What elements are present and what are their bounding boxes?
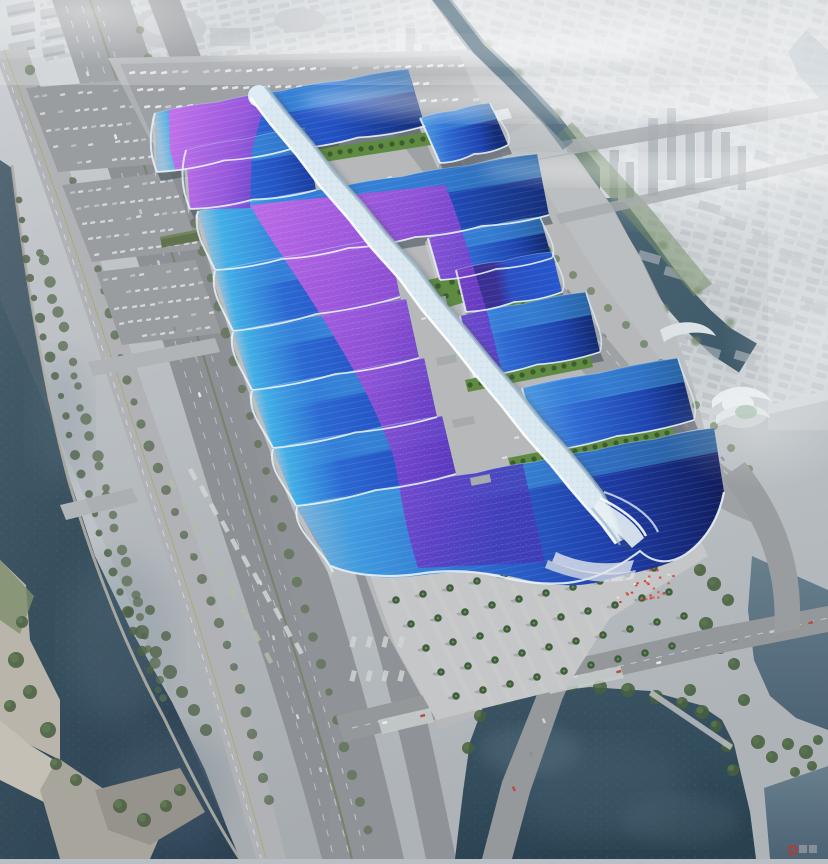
- svg-text:D: D: [788, 842, 798, 858]
